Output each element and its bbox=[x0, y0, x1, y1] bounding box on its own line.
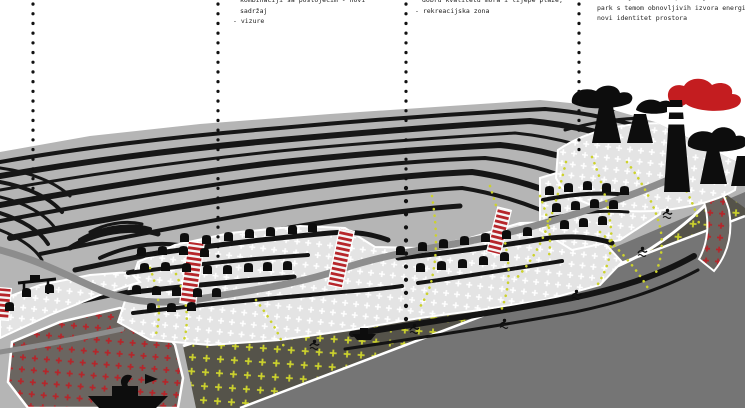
factory-smoke bbox=[572, 86, 633, 109]
annotation-line: sadržaj bbox=[233, 6, 365, 17]
annotation-line: - vizure bbox=[233, 16, 365, 27]
annotation-note-1: kombinaciji sa postojećim - novi sadržaj… bbox=[233, 0, 365, 27]
annotation-line: park s temom obnovljivih izvora energije… bbox=[597, 3, 745, 14]
diagram-canvas: kombinaciji sa postojećim - novi sadržaj… bbox=[0, 0, 745, 408]
annotation-note-3: industrijske zone - potencijal za temats… bbox=[597, 0, 745, 24]
annotation-line: dobru kvalitetu mora i lijepe plaže, bbox=[415, 0, 563, 6]
chimney-band bbox=[666, 119, 685, 125]
terrain-map-svg bbox=[0, 0, 745, 408]
chimney-band bbox=[667, 107, 685, 113]
annotation-note-2: dobru kvalitetu mora i lijepe plaže, - r… bbox=[415, 0, 563, 16]
annotation-line: - rekreacijska zona bbox=[415, 6, 563, 17]
annotation-line: novi identitet prostora bbox=[597, 13, 745, 24]
factory-smoke bbox=[688, 127, 745, 151]
annotation-line: kombinaciji sa postojećim - novi bbox=[233, 0, 365, 6]
